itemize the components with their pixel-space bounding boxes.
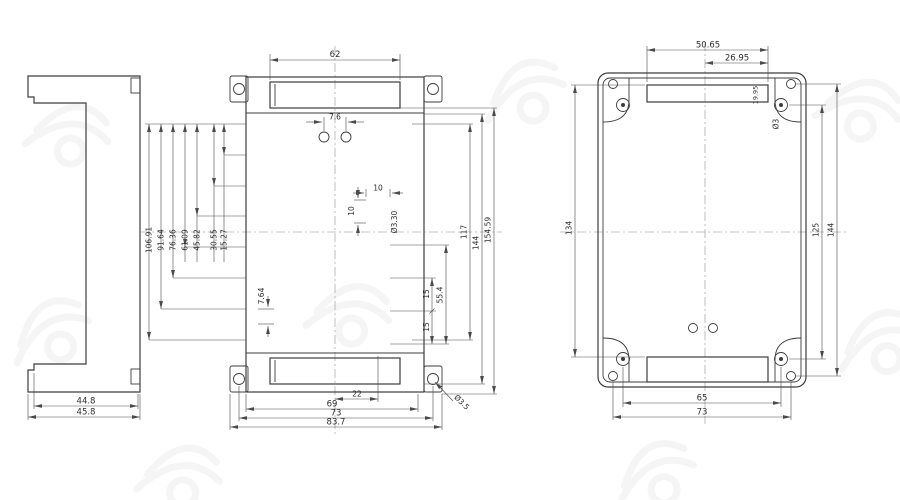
dim-label-pitch: 15.27 (220, 229, 229, 251)
din-clip-notch-bottom (131, 369, 140, 384)
pin-hole (709, 324, 718, 333)
mounting-ears (230, 76, 442, 392)
mounting-hole (234, 84, 245, 95)
dim-total-height: 154.59 (400, 108, 497, 394)
dim-label-slot-note: 19.95 (752, 86, 760, 105)
mounting-hole (428, 374, 439, 385)
dim-label-terminal-hole-dia: Ø3.30 (390, 210, 399, 233)
mounting-hole (428, 84, 439, 95)
dim-label: 10 (373, 184, 383, 193)
dim-label: 83.7 (327, 418, 346, 428)
back-view: 19.95 Ø3 50.65 26.95 134 125 (560, 41, 848, 425)
dim-label: 7.6 (329, 113, 341, 122)
dim-label: 15 (422, 289, 431, 299)
corner-hole (609, 80, 618, 89)
dim-label-pitch: 76.36 (169, 229, 178, 251)
dim-label: 62 (330, 50, 341, 60)
dim-square-width: 10 (353, 184, 403, 198)
dim-slot-half-width: 26.95 (705, 54, 768, 64)
watermark (4, 57, 900, 500)
dim-label: 65 (697, 394, 708, 404)
dim-label: 55.4 (436, 286, 445, 303)
dim-left-height: 134 (565, 85, 646, 357)
dim-label: 45.8 (77, 408, 96, 418)
back-top-slot (647, 85, 768, 102)
dim-label: 117 (460, 225, 469, 240)
dim-label-pitch: 91.64 (157, 229, 166, 251)
back-bottom-slot (647, 357, 768, 382)
din-clip-notch-top (131, 78, 140, 93)
dim-label: 144 (827, 223, 836, 238)
dim-label-pitch: 45.82 (193, 229, 202, 251)
dim-label: 50.65 (696, 41, 720, 51)
dim-label: 134 (565, 221, 574, 236)
corner-hole (787, 80, 796, 89)
dim-label-pitch: 61.09 (181, 229, 190, 251)
dim-square-height: 10 (347, 187, 366, 236)
enclosure-dimension-drawing: 44.8 45.8 (0, 0, 900, 500)
dim-label: 144 (472, 236, 481, 251)
dim-label-pitch: 106.91 (145, 227, 154, 253)
dim-label: 7.64 (257, 287, 266, 304)
dim-body-height: 144 (424, 114, 485, 384)
dim-label: 154.59 (484, 217, 493, 243)
dim-label: 44.8 (77, 397, 96, 407)
front-view: 15.2730.5545.8261.0976.3691.64106.91 62 … (140, 46, 502, 434)
pilot-hole (319, 132, 329, 142)
dim-bottom-hole-pitch: 7.64 (257, 287, 274, 337)
pilot-hole (341, 132, 351, 142)
mounting-hole (234, 374, 245, 385)
dim-width-inner: 44.8 (34, 373, 138, 409)
dim-mount-hole-dia: Ø3.5 (435, 382, 471, 412)
dim-label: 26.95 (725, 54, 749, 64)
pin-hole (689, 324, 698, 333)
dim-label: 73 (697, 408, 708, 418)
dim-slot-width: 50.65 (647, 41, 768, 83)
dim-label-screw-dia: Ø3 (772, 118, 781, 129)
corner-hole (787, 372, 796, 381)
drawing-canvas: 44.8 45.8 (0, 0, 900, 500)
dim-label: 15 (422, 322, 431, 332)
dim-label: 22 (352, 390, 362, 399)
dim-label: Ø3.5 (452, 393, 471, 412)
dim-label: 10 (347, 206, 356, 216)
dim-label-pitch: 30.55 (210, 229, 219, 251)
dim-label: 125 (812, 223, 821, 238)
corner-hole (609, 372, 618, 381)
dim-bottom-offset: 22 (335, 356, 378, 402)
dim-square-span: 55.4 (390, 245, 449, 344)
